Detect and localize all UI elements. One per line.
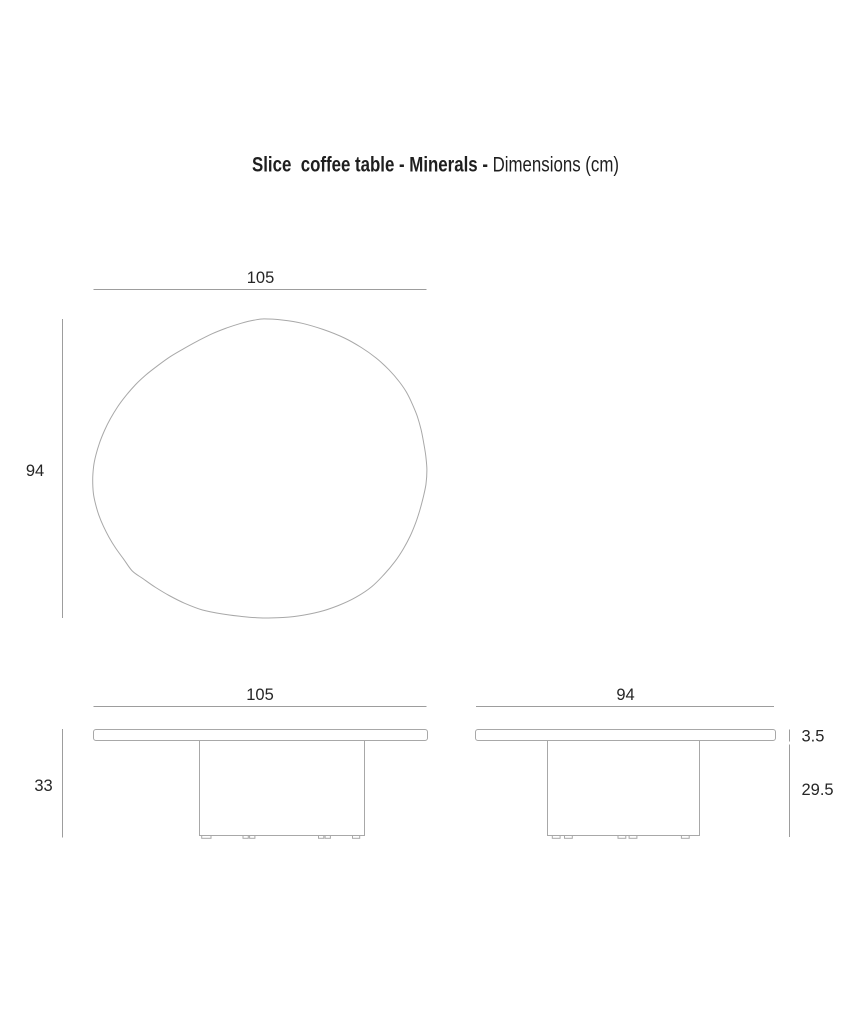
svg-text:94: 94 — [26, 462, 44, 480]
svg-text:33: 33 — [34, 777, 52, 795]
svg-text:Slice coffee table - Minerals: Slice coffee table - Minerals - Dimensio… — [252, 154, 619, 177]
svg-text:105: 105 — [247, 269, 275, 287]
svg-text:105: 105 — [246, 686, 274, 704]
svg-text:29.5: 29.5 — [802, 781, 834, 799]
svg-text:94: 94 — [616, 686, 634, 704]
svg-text:3.5: 3.5 — [802, 728, 825, 746]
